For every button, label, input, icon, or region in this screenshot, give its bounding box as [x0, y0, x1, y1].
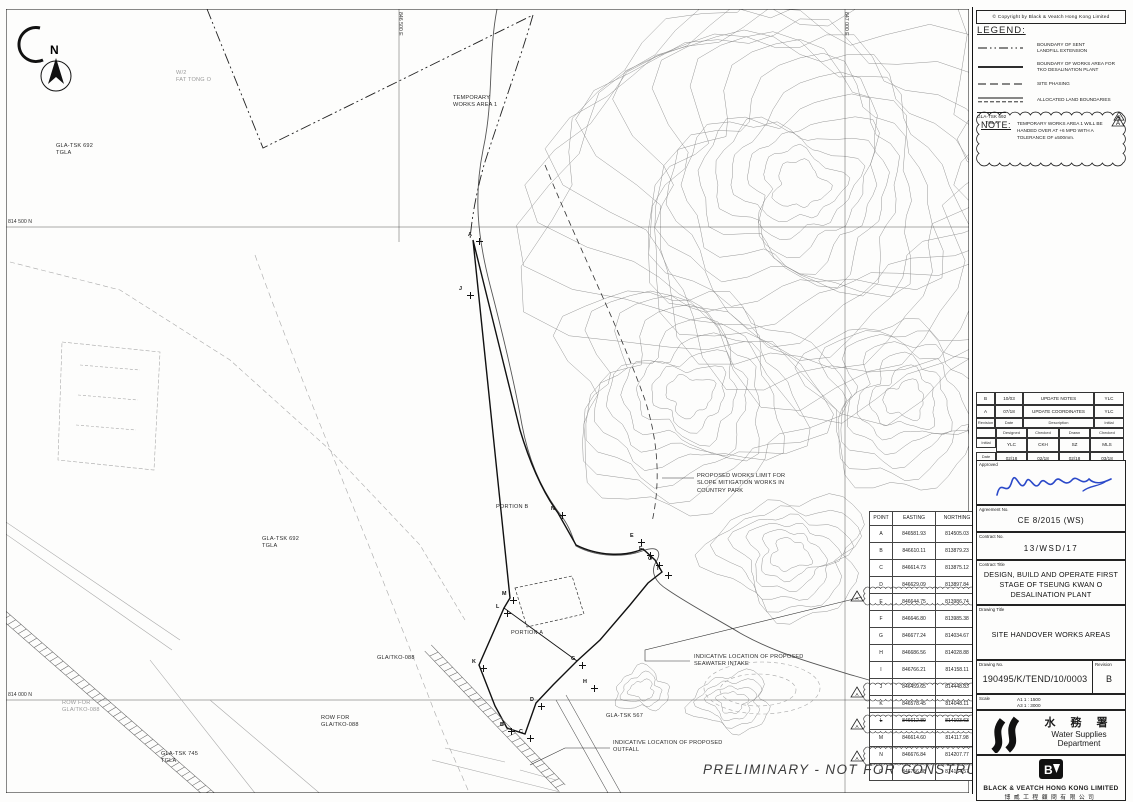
contract-no-label: Contract No. [979, 534, 1004, 539]
coordinate-cell: B [870, 543, 893, 560]
revision-cell: YLC [1094, 405, 1124, 418]
coordinate-cell: 846686.56 [893, 645, 936, 662]
scale-box: Scale A1 1 : 1500 A3 1 : 3000 [976, 694, 1126, 710]
agreement-no: CE 8/2015 (WS) [977, 516, 1125, 525]
drawing-title: SITE HANDOVER WORKS AREAS [977, 630, 1125, 640]
drawing-title-label: Drawing Title [979, 607, 1004, 612]
portion-divider [504, 608, 577, 661]
revision-header: Description [1023, 418, 1094, 428]
coordinate-cell: M [870, 730, 893, 747]
drawing-no-box: Drawing No. 190495/K/TEND/10/0003 Revisi… [976, 660, 1126, 694]
coordinate-row: E846644.75813986.74 [870, 594, 979, 611]
copyright-text: © Copyright by Black & Veatch Hong Kong … [977, 11, 1125, 24]
coordinate-row: I846766.21814158.11 [870, 662, 979, 679]
coordinate-cell: 846644.75 [893, 594, 936, 611]
title-block-panel: © Copyright by Black & Veatch Hong Kong … [972, 7, 1129, 794]
coordinate-cell: K [870, 696, 893, 713]
coordinate-cell: C [870, 560, 893, 577]
north-arrow: N [10, 14, 88, 96]
coordinate-row: A846581.93814505.03 [870, 526, 979, 543]
coordinate-cell: J [870, 679, 893, 696]
contract-no-box: Contract No. 13/WSD/17 [976, 532, 1126, 560]
drawing-no-label: Drawing No. [979, 662, 1003, 667]
staff-header [976, 428, 996, 438]
contract-title-label: Contract Title [979, 562, 1005, 567]
drawing-title-box: Drawing Title SITE HANDOVER WORKS AREAS [976, 605, 1126, 660]
legend-line-sample-allocated [977, 95, 1025, 105]
coordinate-cell: 846578.45 [893, 696, 936, 713]
coordinate-cell: 846612.89 [893, 713, 936, 730]
note-title: NOTE: [981, 120, 1011, 130]
staff-header: Drawn [1059, 428, 1090, 438]
legend-item: BOUNDARY OF SENT LANDFILL EXTENSION [977, 42, 1125, 55]
note-revision-triangle-icon: B [1113, 111, 1125, 121]
agreement-label: Agreement No. [979, 507, 1009, 512]
coordinate-cell: 846614.73 [893, 560, 936, 577]
revision-header: Revision [976, 418, 995, 428]
wsd-chinese: 水 務 署 [1031, 714, 1127, 730]
scale-label: Scale [979, 696, 990, 701]
staff-row-label: Initial [976, 438, 996, 448]
site-plan-map [0, 0, 975, 802]
coordinate-cell: 846629.09 [893, 577, 936, 594]
staff-cell: CKH [1027, 438, 1059, 452]
preliminary-watermark: PRELIMINARY - NOT FOR CONSTRUCTION [703, 762, 971, 777]
legend-item: ALLOCATED LAND BOUNDARIES [977, 95, 1125, 105]
coordinate-row: M846614.60814117.98 [870, 730, 979, 747]
sent-landfill-boundary [207, 9, 533, 240]
revision-box: Revision B [1092, 661, 1125, 693]
staff-header: Designed [996, 428, 1027, 438]
legend-line-sample-dashed [977, 79, 1025, 89]
staff-cell: SZ [1059, 438, 1090, 452]
approved-box: Approved [976, 460, 1126, 505]
north-label: N [50, 43, 59, 57]
revision-cell: B [976, 392, 995, 405]
coordinate-row: B846610.11813879.23 [870, 543, 979, 560]
coordinate-cell: L [870, 713, 893, 730]
wsd-logo-icon [985, 715, 1027, 753]
drawing-no: 190495/K/TEND/10/0003 [979, 674, 1091, 684]
bv-chinese: 博威工程顧問有限公司 [977, 792, 1125, 801]
coordinate-cell: N [870, 747, 893, 764]
plant-outline [515, 576, 584, 627]
legend-title: LEGEND: [977, 25, 1125, 36]
legend-item-label: SITE PHASING [1037, 81, 1070, 87]
revision-label: Revision [1095, 662, 1112, 667]
legend-line-sample-solid [977, 62, 1025, 72]
legend-item-label: BOUNDARY OF WORKS AREA FOR TKO DESALINAT… [1037, 61, 1115, 74]
coordinate-row: K846578.45814048.11 [870, 696, 979, 713]
contract-title: DESIGN, BUILD AND OPERATE FIRST STAGE OF… [977, 570, 1125, 600]
drawing-sheet: N TEMPORARY WORKS AREA 1GLA-TSK 692 TGLA… [0, 0, 1133, 802]
coordinate-row: L846612.89814103.63 [870, 713, 979, 730]
staff-cell: YLC [996, 438, 1027, 452]
revision-cell: UPDATE COORDINATES [1023, 405, 1094, 418]
revision-header: Initial [1094, 418, 1124, 428]
coordinate-row: J846459.65814448.83 [870, 679, 979, 696]
coordinate-cell: G [870, 628, 893, 645]
coordinate-cell: E [870, 594, 893, 611]
coordinate-row: G846677.24814034.67 [870, 628, 979, 645]
approval-signature [985, 469, 1125, 503]
legend-item: SITE PHASING [977, 79, 1125, 89]
coordinate-row: F846646.80813985.38 [870, 611, 979, 628]
coordinate-cell: 846766.21 [893, 662, 936, 679]
coordinate-cell: 846646.80 [893, 611, 936, 628]
agreement-box: Agreement No. CE 8/2015 (WS) [976, 505, 1126, 532]
staff-header: Checked [1027, 428, 1059, 438]
coordinate-cell: 846614.60 [893, 730, 936, 747]
contract-title-box: Contract Title DESIGN, BUILD AND OPERATE… [976, 560, 1126, 605]
coordinate-row: H846686.56814028.88 [870, 645, 979, 662]
revision-table: B10/03UPDATE NOTESYLCA07/18UPDATE COORDI… [976, 392, 1126, 466]
coord-header-point: POINT [870, 512, 893, 526]
coordinate-cell: 846610.11 [893, 543, 936, 560]
existing-features [0, 255, 820, 802]
note-text: TEMPORARY WORKS AREA 1 WILL BE HANDED OV… [1017, 120, 1117, 141]
coordinate-cell: H [870, 645, 893, 662]
revision-cell: YLC [1094, 392, 1124, 405]
revision-cell: UPDATE NOTES [1023, 392, 1094, 405]
coordinate-cell: 846677.24 [893, 628, 936, 645]
revision-header: Date [995, 418, 1023, 428]
bv-logo-icon: B [1038, 758, 1064, 780]
revision-cell: 10/03 [995, 392, 1023, 405]
wsd-box: 水 務 署 Water Supplies Department [976, 710, 1126, 755]
staff-cell: MLS [1090, 438, 1124, 452]
coordinate-cell: 846676.84 [893, 747, 936, 764]
svg-text:B: B [1044, 763, 1053, 777]
coordinate-row: N846676.84814207.77 [870, 747, 979, 764]
leader-lines [530, 478, 862, 765]
coordinate-cell: 846459.65 [893, 679, 936, 696]
bv-name: BLACK & VEATCH HONG KONG LIMITED [977, 785, 1125, 792]
revision-value: B [1093, 674, 1125, 684]
coord-header-easting: EASTING [893, 512, 936, 526]
legend-line-sample-dashdot [977, 43, 1025, 53]
coordinate-cell: 846581.93 [893, 526, 936, 543]
legend-item-label: ALLOCATED LAND BOUNDARIES [1037, 97, 1111, 103]
coordinate-row: C846614.73813875.12 [870, 560, 979, 577]
coordinate-cell: F [870, 611, 893, 628]
copyright-strip: © Copyright by Black & Veatch Hong Kong … [976, 10, 1126, 24]
revision-cell: A [976, 405, 995, 418]
coordinate-cell: I [870, 662, 893, 679]
coordinate-table: POINT EASTING NORTHING A846581.93814505.… [869, 511, 979, 781]
revision-cell: 07/18 [995, 405, 1023, 418]
legend-item: BOUNDARY OF WORKS AREA FOR TKO DESALINAT… [977, 61, 1125, 74]
approved-label: Approved [979, 462, 998, 467]
staff-header: Checked [1090, 428, 1124, 438]
wsd-english: Water Supplies Department [1031, 730, 1127, 749]
bv-box: B BLACK & VEATCH HONG KONG LIMITED 博威工程顧… [976, 755, 1126, 801]
note-box: NOTE: TEMPORARY WORKS AREA 1 WILL BE HAN… [975, 111, 1127, 169]
coordinate-cell: D [870, 577, 893, 594]
contract-no: 13/WSD/17 [977, 544, 1125, 553]
coordinate-cell: A [870, 526, 893, 543]
coordinate-row: D846629.09813897.84 [870, 577, 979, 594]
scale-a3: A3 1 : 3000 [1017, 703, 1041, 709]
legend-item-label: BOUNDARY OF SENT LANDFILL EXTENSION [1037, 42, 1087, 55]
